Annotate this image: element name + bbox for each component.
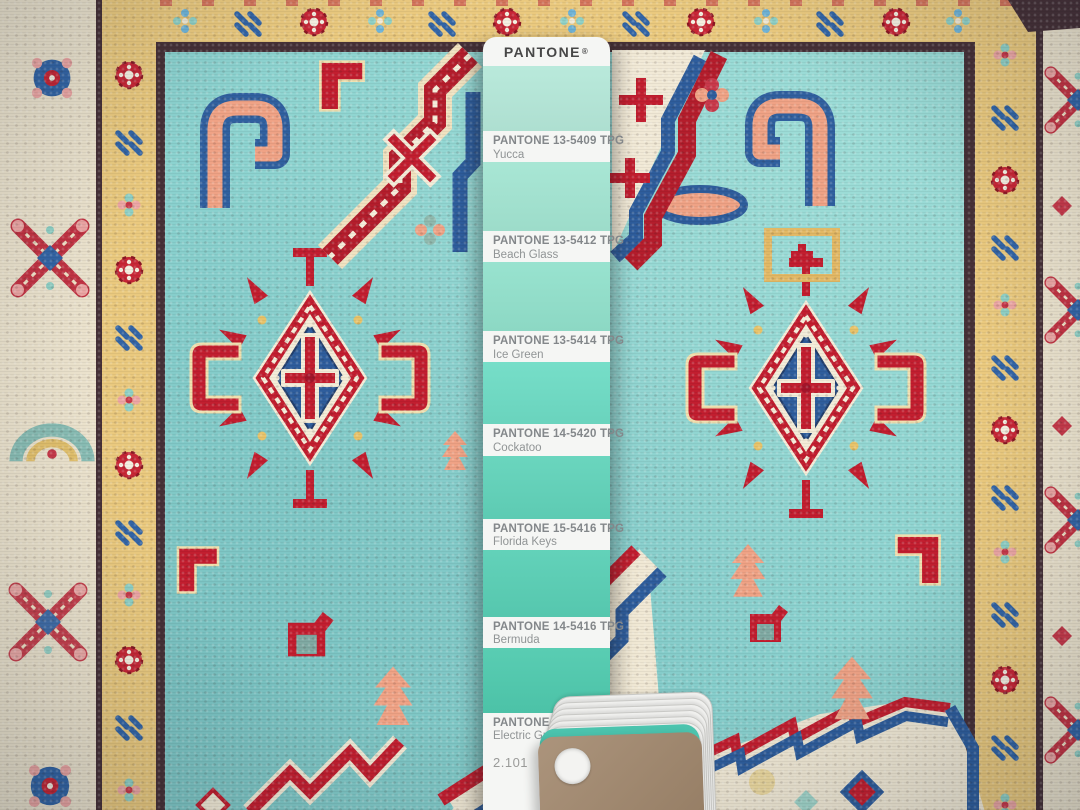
color-swatch-bermuda <box>483 550 610 617</box>
brand-text: PANTONE <box>504 44 581 60</box>
red-teal-motif <box>288 612 334 656</box>
hook-motif <box>896 536 939 585</box>
swatch-label: PANTONE 13-5412 TPG Beach Glass <box>483 231 610 262</box>
swatch-code: PANTONE 13-5412 TPG <box>493 235 610 249</box>
registered-mark: ® <box>582 47 589 56</box>
color-swatch-yucca <box>483 66 610 131</box>
swatch-name: Yucca <box>493 149 610 163</box>
main-border-right-ornaments <box>1046 68 1080 763</box>
peach-arrow-motif <box>442 431 468 470</box>
guard-band-left-ornaments <box>116 62 142 802</box>
color-swatch-cockatoo <box>483 362 610 424</box>
swatch-label: PANTONE 13-5409 TPG Yucca <box>483 131 610 162</box>
swatch-code: PANTONE 13-5414 TPG <box>493 335 610 349</box>
medallion-left <box>191 248 429 508</box>
swatch-code: PANTONE 14-5416 TPG <box>493 621 610 635</box>
swatch-name: Florida Keys <box>493 536 610 550</box>
color-swatch-ice-green <box>483 262 610 331</box>
swatch-code: PANTONE 13-5409 TPG <box>493 135 610 149</box>
color-swatch-beach-glass <box>483 162 610 231</box>
red-teal-motif <box>750 605 788 642</box>
hook-motif <box>178 548 218 593</box>
swatch-label: PANTONE 13-5414 TPG Ice Green <box>483 331 610 362</box>
peach-arrow-motif <box>730 544 765 597</box>
swatch-name: Ice Green <box>493 349 610 363</box>
swatch-name: Bermuda <box>493 634 610 648</box>
swatch-name: Cockatoo <box>493 442 610 456</box>
top-medallion-fragment-left <box>320 55 473 257</box>
rivet-hole <box>554 748 591 785</box>
swatch-code: PANTONE 14-5420 TPG <box>493 428 610 442</box>
peach-arrow-motif <box>374 667 413 726</box>
main-border-left-ornaments <box>10 58 88 807</box>
bird-motif-left <box>215 108 275 208</box>
guard-band-top-ornaments <box>173 9 970 35</box>
swatch-label: PANTONE 14-5416 TPG Bermuda <box>483 617 610 648</box>
medallion-right <box>687 258 925 518</box>
swatch-name: Beach Glass <box>493 249 610 263</box>
bird-motif-right <box>760 106 820 206</box>
swatch-label: PANTONE 15-5416 TPG Florida Keys <box>483 519 610 550</box>
top-medallion-fragment-right <box>610 50 836 278</box>
page-number: 2.101 <box>493 755 528 770</box>
pantone-logo: PANTONE® <box>483 37 610 66</box>
swatch-code: PANTONE 15-5416 TPG <box>493 523 610 537</box>
color-swatch-florida-keys <box>483 456 610 519</box>
fan-deck-top-card <box>538 732 705 810</box>
guard-band-right-ornaments <box>992 44 1018 810</box>
fan-deck-stack <box>532 677 737 810</box>
swatch-label: PANTONE 14-5420 TPG Cockatoo <box>483 424 610 455</box>
photo-scene: PANTONE® PANTONE 13-5409 TPG Yucca PANTO… <box>0 0 1080 810</box>
